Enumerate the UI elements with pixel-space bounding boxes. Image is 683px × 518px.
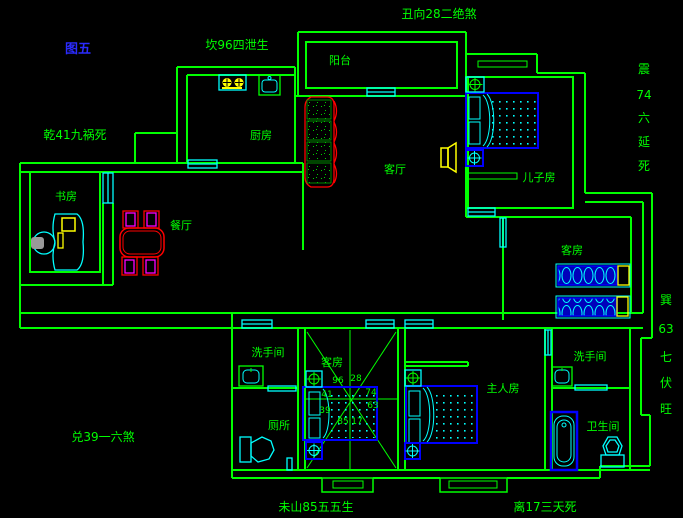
annotation-top: 丑向28二绝煞 [401, 6, 476, 21]
zhen-char: 六 [638, 111, 650, 125]
room-label-son: 儿子房 [523, 171, 556, 184]
zhen-char: 死 [638, 159, 650, 173]
tv [441, 143, 456, 172]
window-son-room [468, 208, 495, 216]
washroom-left-sink [239, 366, 263, 386]
annotation-li: 离17三天死 [513, 499, 576, 514]
computer-monitor [62, 218, 75, 231]
computer-keyboard [58, 233, 63, 248]
center-nightstand-top [306, 371, 322, 387]
master-nightstand-bottom [405, 443, 420, 459]
pillow [309, 418, 320, 438]
xun-char: 七 [660, 350, 672, 364]
xun-char: 伏 [660, 376, 672, 390]
xun-char: 巽 [660, 293, 672, 307]
room-label-guest-center: 客房 [321, 355, 343, 369]
room-label-wash-left: 洗手间 [252, 345, 285, 359]
master-bed [406, 386, 477, 443]
annotation-dui: 兑39一六煞 [71, 430, 134, 444]
shelf [468, 173, 517, 179]
room-label-toilet: 厕所 [268, 419, 290, 432]
room-label-balcony: 阳台 [329, 53, 351, 67]
compass-e: 74 [365, 388, 377, 398]
bathtub [551, 412, 577, 470]
master-nightstand-top [405, 370, 421, 386]
window-study [103, 173, 113, 203]
annotation-kan: 坎96四泄生 [205, 38, 268, 52]
compass-n: 96 [332, 376, 344, 386]
window-sill [478, 61, 527, 67]
toilet-right [601, 437, 624, 467]
entry-step-right-inner [449, 481, 497, 488]
compass-nw: 41 [321, 390, 332, 400]
son-bed [466, 93, 538, 148]
entry-step-left-inner [333, 481, 363, 488]
pillow [469, 122, 480, 144]
study-room-wall [30, 172, 100, 272]
zhen-char: 74 [636, 88, 651, 102]
window-kitchen [188, 160, 217, 168]
kitchen-sink [259, 75, 280, 95]
annotation-zhen-column: 震 74 六 延 死 [636, 62, 651, 173]
room-label-kitchen: 厨房 [250, 129, 272, 142]
window-hall-3 [405, 320, 433, 328]
room-label-master: 主人房 [487, 382, 520, 395]
door-toilet [287, 458, 292, 470]
room-label-guest-east: 客房 [561, 243, 583, 257]
sofa [305, 97, 337, 187]
washroom-right-sink [552, 367, 572, 386]
pillow [469, 97, 480, 119]
annotation-qian: 乾41九祸死 [43, 127, 106, 142]
stove [219, 75, 246, 90]
zhen-char: 震 [638, 62, 650, 76]
annotation-xun-column: 巽 63 七 伏 旺 [658, 293, 673, 416]
compass-s: 17 [351, 417, 362, 427]
pillow [409, 419, 420, 443]
center-nightstand-bottom [306, 442, 322, 459]
annotation-wei: 未山85五五生 [278, 500, 353, 514]
floor-plan-canvas: 图五 丑向28二绝煞 坎96四泄生 乾41九祸死 兑39一六煞 未山85五五生 … [0, 0, 683, 518]
entry-step-left [322, 478, 373, 492]
room-label-wash-right: 洗手间 [574, 349, 607, 363]
figure-label: 图五 [65, 42, 91, 57]
window-balcony [367, 88, 395, 96]
guest-bed-2 [556, 296, 630, 318]
room-label-study: 书房 [55, 190, 77, 203]
room-label-dining: 餐厅 [170, 218, 192, 232]
dining-table [120, 228, 164, 257]
floor-plan: 图五 丑向28二绝煞 坎96四泄生 乾41九祸死 兑39一六煞 未山85五五生 … [0, 0, 683, 518]
pillow [409, 391, 420, 416]
window-hall-2 [366, 320, 394, 328]
study-mouse [31, 237, 44, 249]
zhen-char: 延 [638, 135, 650, 149]
toilet-left [240, 437, 274, 462]
xun-char: 63 [658, 322, 673, 336]
dining-chairs [122, 211, 159, 275]
room-label-bath: 卫生间 [587, 419, 620, 433]
compass-w: 39 [319, 406, 331, 416]
compass-ne: 28 [350, 374, 362, 384]
pillow [618, 266, 629, 285]
study-desk [31, 214, 83, 270]
room-label-living: 客厅 [384, 162, 406, 176]
window-hall-1 [242, 320, 272, 328]
guest-bed-1 [556, 264, 630, 287]
compass-se: 63 [367, 401, 378, 411]
compass-sw: 85 [337, 417, 348, 427]
door-guest-room [500, 218, 506, 247]
xun-char: 旺 [660, 402, 672, 416]
